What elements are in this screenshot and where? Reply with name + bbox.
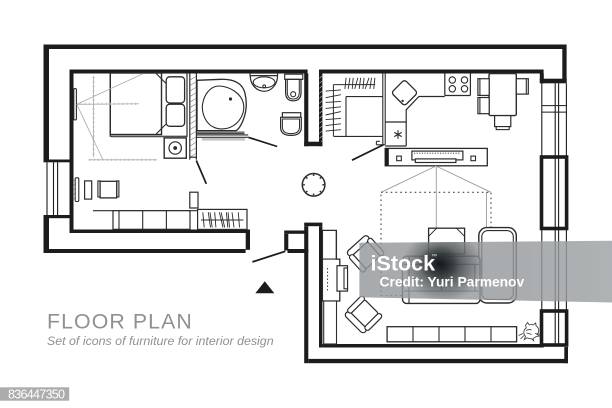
svg-text:Set of icons of furniture for: Set of icons of furniture for interior d… [47,334,274,348]
svg-text:836447350: 836447350 [8,388,65,402]
svg-text:Credit: Yuri Parmenov: Credit: Yuri Parmenov [380,274,525,289]
svg-text:FLOOR PLAN: FLOOR PLAN [47,310,193,334]
svg-text:™: ™ [431,253,437,260]
svg-text:iStock: iStock [371,252,436,276]
